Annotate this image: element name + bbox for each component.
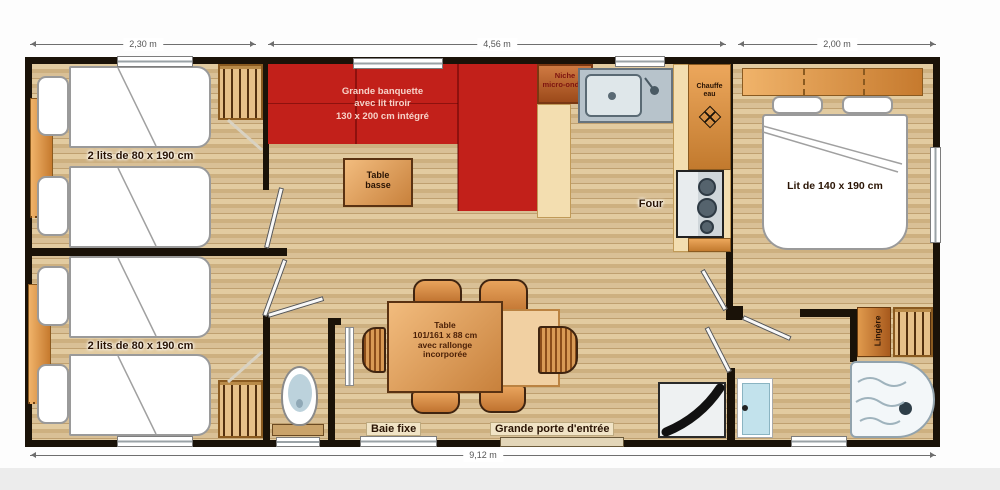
wardrobe-hanger-rack-icon <box>218 64 263 120</box>
wall-wc-left <box>263 313 270 440</box>
window <box>615 56 665 67</box>
dimension-bottom: 9,12 m <box>28 449 938 461</box>
fixed-bay-window <box>360 436 437 447</box>
entry-door <box>500 437 624 447</box>
oven-label: Four <box>628 198 674 211</box>
wall-bathroom-top <box>800 309 857 317</box>
wall-between-twin-bedrooms <box>25 248 287 256</box>
faucet-icon <box>650 86 659 95</box>
dimension-top-left: 2,30 m <box>28 38 258 50</box>
corner-washbasin-icon <box>658 382 726 438</box>
coffee-table: Table basse <box>343 158 413 207</box>
fan-diamond-icon <box>699 106 722 129</box>
wc-window <box>276 437 320 447</box>
dimension-label: 2,30 m <box>123 38 163 51</box>
dining-chair <box>362 327 386 373</box>
door-handle <box>742 405 748 411</box>
dining-chair <box>538 326 578 374</box>
single-bed <box>69 354 211 436</box>
single-bed <box>69 256 211 338</box>
pillow <box>37 176 69 236</box>
window <box>791 436 847 447</box>
pillow <box>37 266 69 326</box>
cabinet-below-hob <box>688 238 731 252</box>
pillow <box>842 96 893 114</box>
fixed-bay-label: Baie fixe <box>366 422 421 436</box>
gas-hob-icon <box>676 170 724 238</box>
shower-drain <box>899 402 912 415</box>
linen-cabinet-label: Lingère <box>873 316 883 347</box>
pillow <box>37 364 69 424</box>
sofa-label: Grande banquette avec lit tiroir 130 x 2… <box>290 86 475 123</box>
shower-tray-icon <box>850 361 935 438</box>
dimension-label: 9,12 m <box>463 449 503 462</box>
entry-door-label: Grande porte d'entrée <box>490 422 614 436</box>
wall-hall-stub <box>727 368 735 440</box>
single-bed <box>69 166 211 248</box>
kitchen-counter <box>537 104 571 218</box>
toilet-drain <box>296 399 303 408</box>
double-bed-label: Lit de 140 x 190 cm <box>762 180 908 192</box>
dimension-top-right: 2,00 m <box>736 38 938 50</box>
headboard-shelf <box>742 68 923 96</box>
pillow <box>772 96 823 114</box>
wall-wc-right-stub <box>328 318 341 325</box>
bedroom1-label: 2 lits de 80 x 190 cm <box>38 150 243 163</box>
window <box>117 56 193 67</box>
shower-room-door <box>737 378 773 438</box>
water-heater-cabinet: Chauffe eau <box>688 64 731 170</box>
bedroom2-label: 2 lits de 80 x 190 cm <box>38 340 243 353</box>
dimension-label: 2,00 m <box>817 38 857 51</box>
wall-wc-right <box>328 318 335 440</box>
window <box>930 147 941 243</box>
mobile-home-floor-plan: 2,30 m 4,56 m 2,00 m 9,12 m 2 lits de 80… <box>0 0 1000 490</box>
dimension-label: 4,56 m <box>477 38 517 51</box>
window <box>117 436 193 447</box>
page-footer-band <box>0 468 1000 490</box>
sofa-bench-corner <box>458 144 537 211</box>
wardrobe-hanger-rack-icon <box>893 307 933 357</box>
dining-chair <box>411 391 460 414</box>
dimension-top-center: 4,56 m <box>266 38 728 50</box>
door-hinge-block <box>726 306 743 320</box>
folding-door-panel <box>345 327 354 386</box>
wardrobe-hanger-rack-icon <box>218 380 263 438</box>
sink-drain <box>608 92 616 100</box>
single-bed <box>69 66 211 148</box>
wall-bathroom-left <box>850 309 857 362</box>
window <box>353 58 443 69</box>
linen-cabinet: Lingère <box>857 307 891 357</box>
dining-table: Table 101/161 x 88 cm avec rallonge inco… <box>387 301 503 393</box>
pillow <box>37 76 69 136</box>
